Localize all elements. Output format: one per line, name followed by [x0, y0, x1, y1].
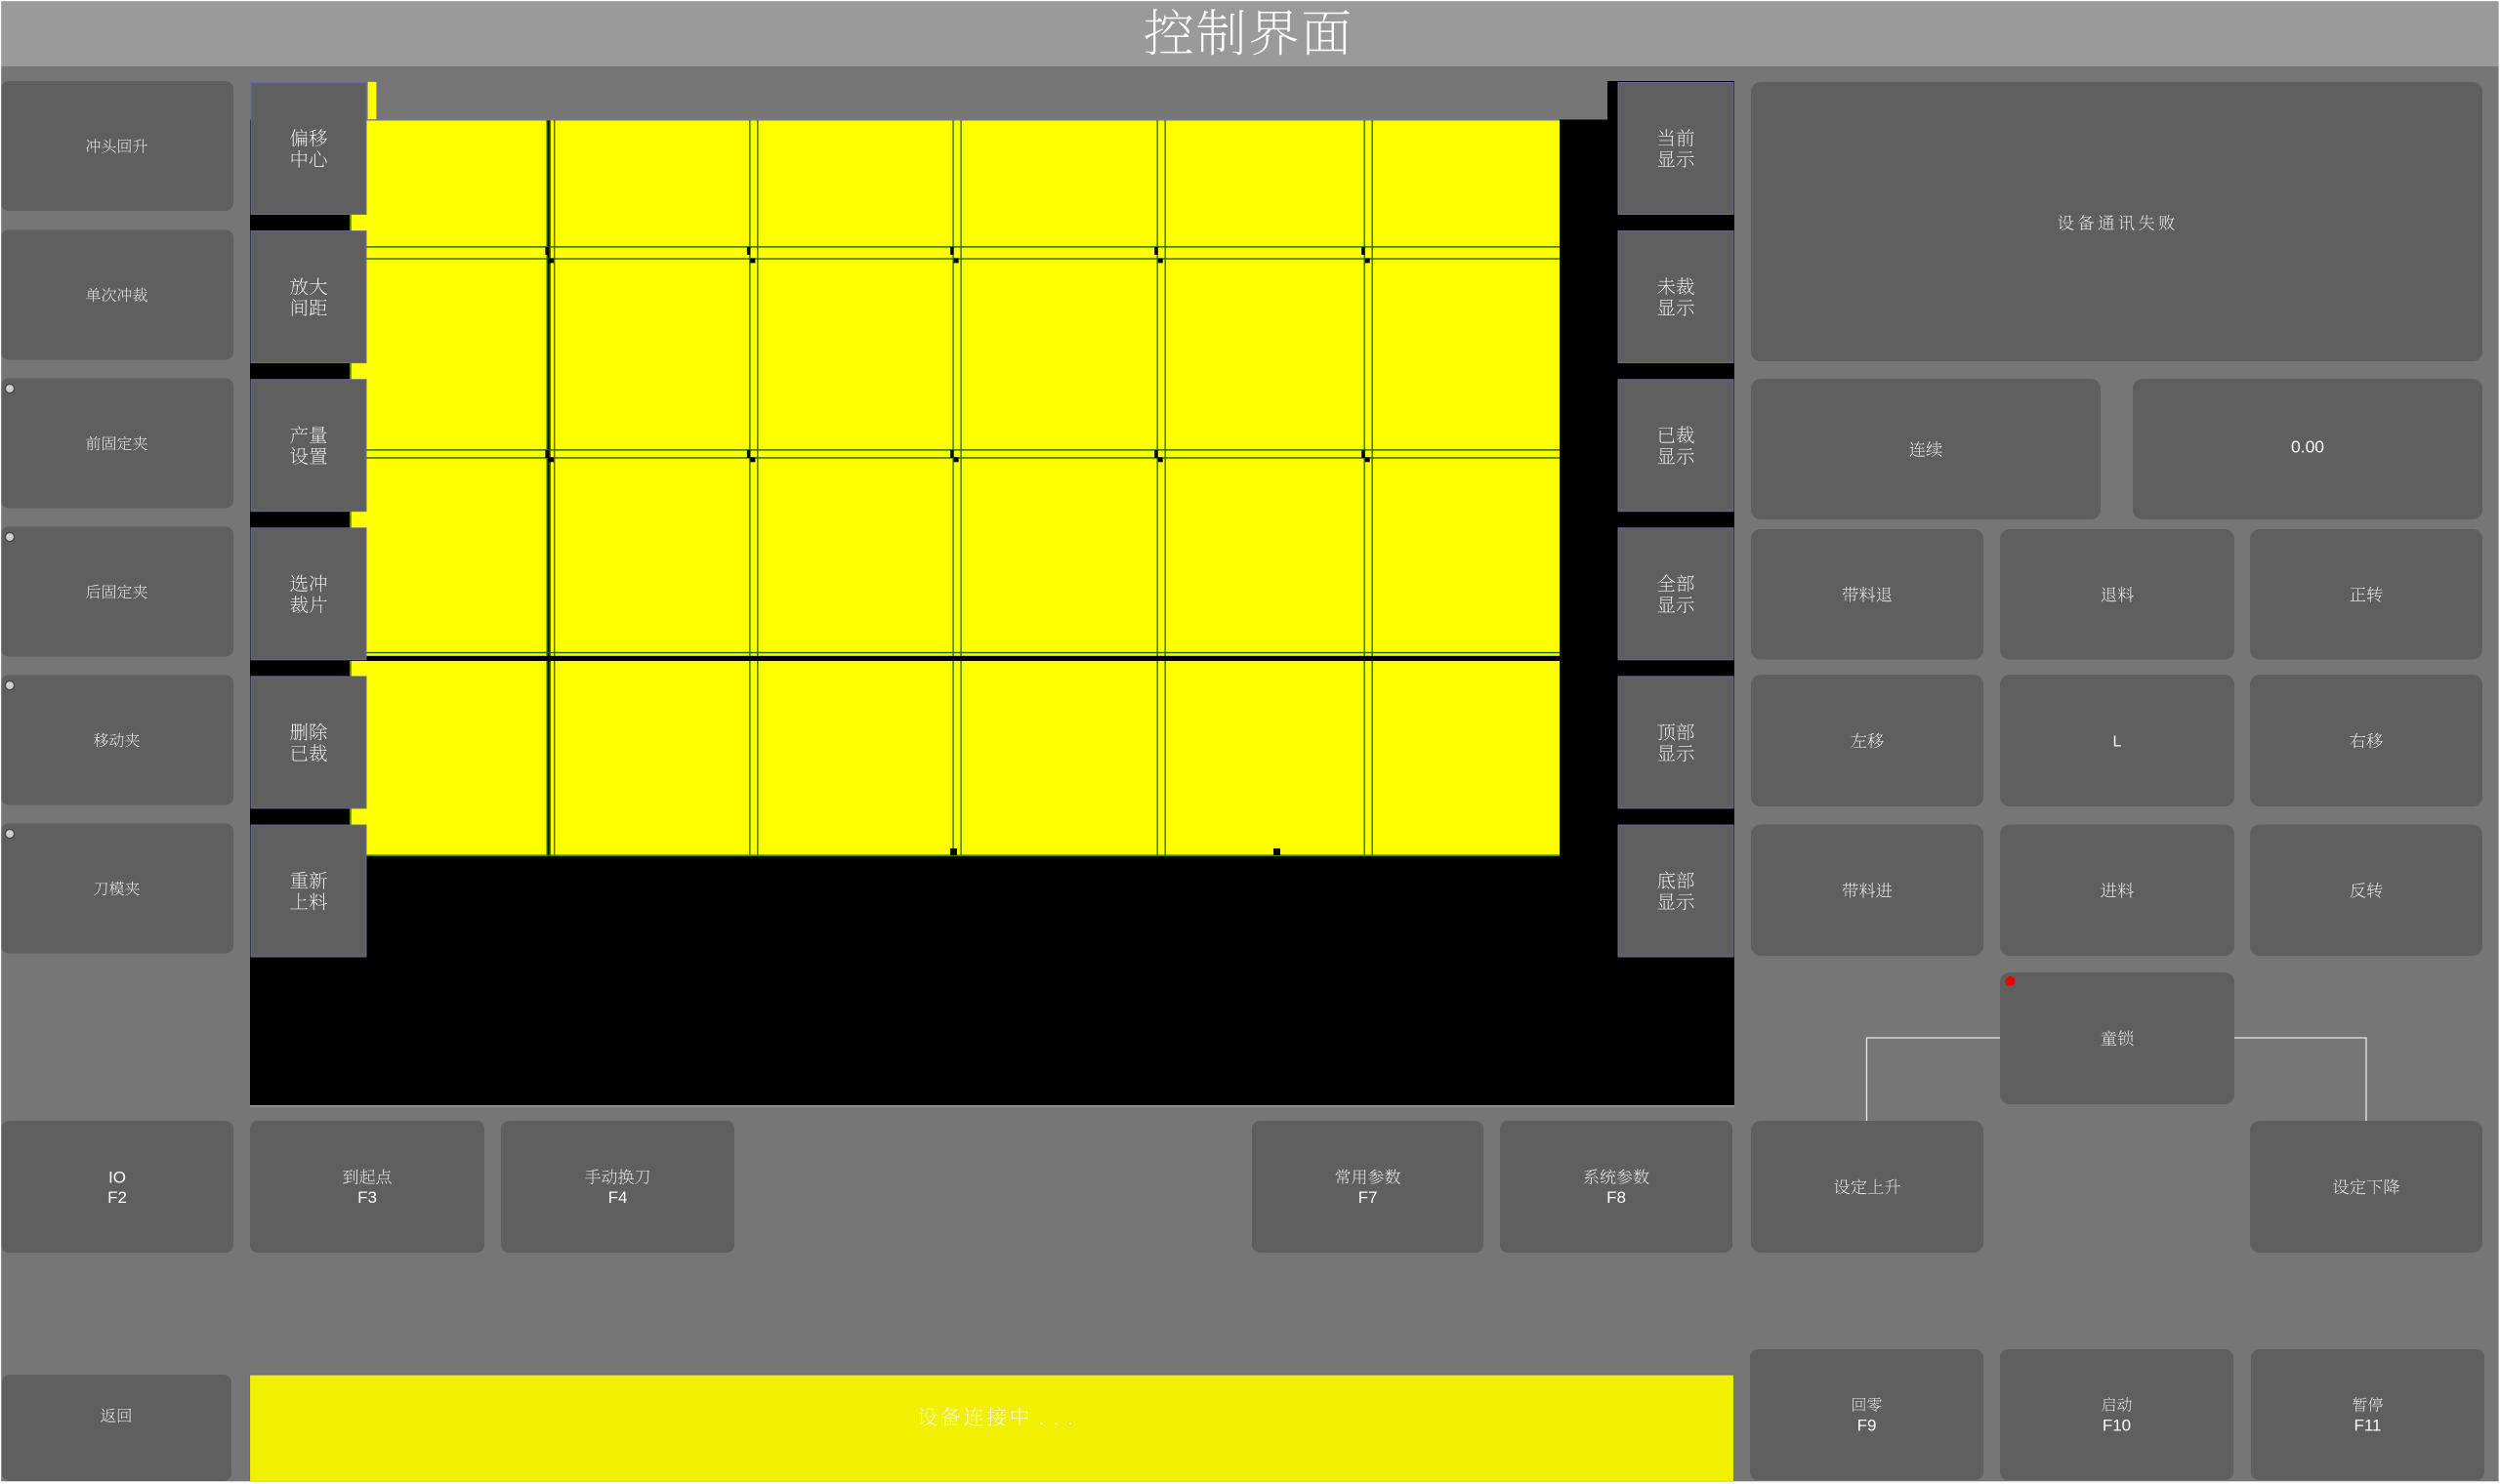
svg-text:F11: F11 [2354, 1417, 2381, 1435]
svg-text:F4: F4 [608, 1188, 628, 1207]
svg-text:IO: IO [108, 1168, 126, 1186]
svg-text:0.00: 0.00 [2291, 437, 2324, 457]
svg-text:F8: F8 [1606, 1188, 1626, 1207]
svg-text:L: L [2113, 733, 2122, 750]
svg-text:F7: F7 [1358, 1188, 1378, 1207]
svg-text:F9: F9 [1857, 1417, 1877, 1435]
svg-text:F10: F10 [2103, 1417, 2131, 1435]
svg-text:F2: F2 [107, 1188, 127, 1207]
svg-text:F3: F3 [357, 1188, 377, 1207]
